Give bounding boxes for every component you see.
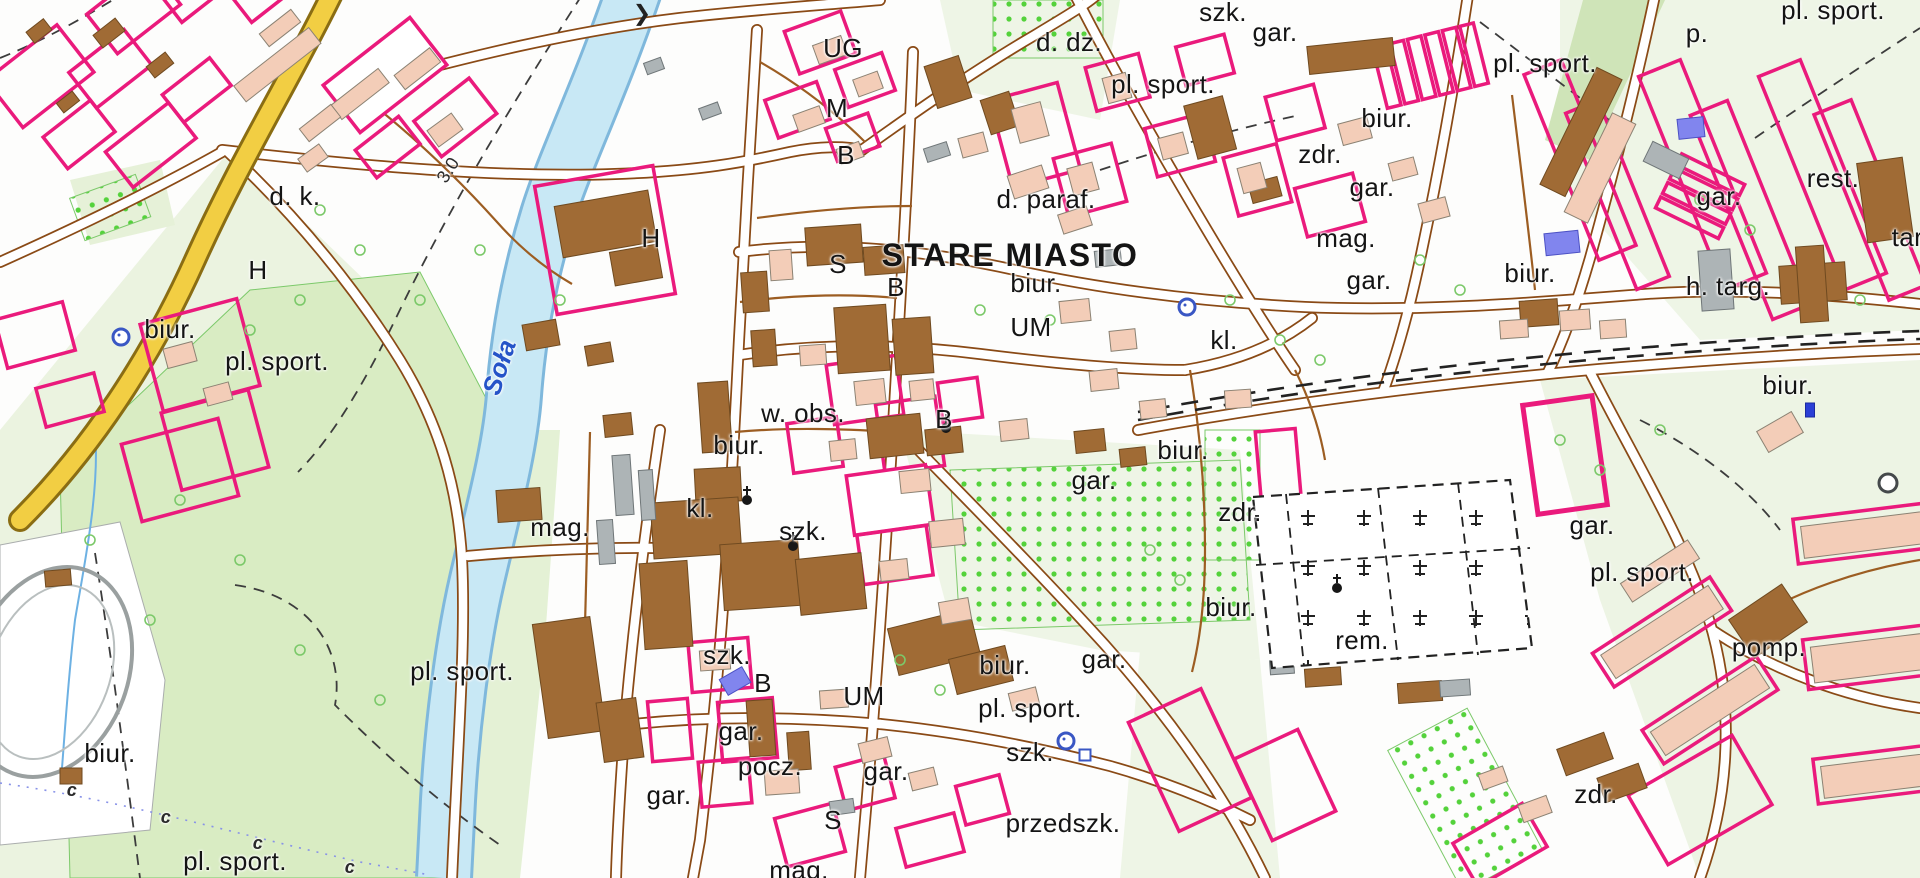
map-artwork xyxy=(0,0,1920,878)
map-canvas[interactable]: ❯ d. k.Hbiur.pl. sport.Soła3.0mag.pl. sp… xyxy=(0,0,1920,878)
cemetery xyxy=(1253,480,1532,668)
